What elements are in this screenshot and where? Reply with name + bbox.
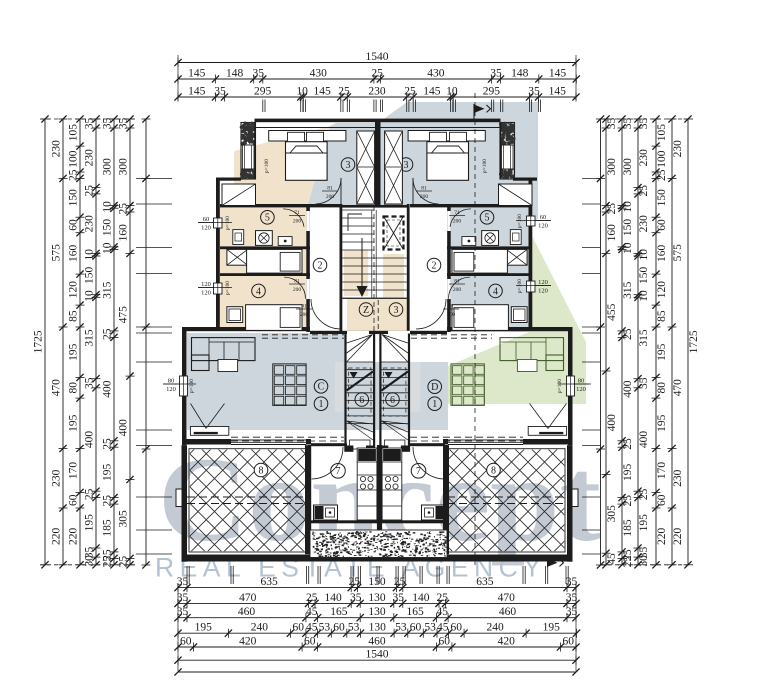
- svg-text:150: 150: [102, 219, 114, 237]
- svg-text:10: 10: [446, 86, 458, 98]
- svg-text:25: 25: [437, 592, 449, 604]
- svg-text:71: 71: [294, 210, 300, 216]
- svg-text:400: 400: [118, 419, 130, 437]
- svg-text:120: 120: [656, 281, 668, 299]
- svg-text:25: 25: [622, 438, 634, 450]
- svg-text:120: 120: [201, 290, 211, 297]
- svg-text:230: 230: [51, 140, 63, 158]
- svg-text:p=100: p=100: [482, 159, 488, 173]
- svg-text:145: 145: [549, 68, 567, 80]
- svg-text:130: 130: [368, 606, 386, 618]
- svg-text:25: 25: [638, 185, 650, 197]
- svg-text:195: 195: [638, 514, 650, 532]
- svg-text:635: 635: [260, 576, 278, 588]
- svg-text:35: 35: [214, 86, 226, 98]
- svg-text:35: 35: [177, 592, 189, 604]
- svg-text:300: 300: [606, 158, 618, 176]
- svg-text:25: 25: [371, 68, 383, 80]
- svg-text:460: 460: [238, 606, 256, 618]
- svg-text:120: 120: [538, 288, 548, 295]
- svg-text:1540: 1540: [366, 649, 389, 661]
- svg-text:165: 165: [406, 606, 424, 618]
- svg-text:60: 60: [540, 214, 547, 221]
- svg-text:25: 25: [622, 556, 634, 568]
- svg-text:5: 5: [265, 213, 270, 224]
- svg-text:200: 200: [453, 219, 462, 225]
- svg-text:420: 420: [239, 636, 257, 648]
- svg-text:165: 165: [330, 606, 348, 618]
- svg-text:85: 85: [656, 310, 668, 322]
- svg-text:3: 3: [394, 305, 399, 316]
- svg-text:130: 130: [369, 622, 387, 634]
- svg-text:4: 4: [493, 286, 498, 297]
- svg-text:60: 60: [333, 622, 345, 634]
- svg-text:230: 230: [84, 149, 96, 167]
- svg-text:120: 120: [201, 281, 211, 288]
- svg-text:60: 60: [68, 494, 80, 506]
- svg-text:160: 160: [68, 245, 80, 263]
- svg-text:p=100: p=100: [225, 216, 231, 230]
- svg-text:130: 130: [368, 592, 386, 604]
- svg-text:45: 45: [306, 622, 318, 634]
- svg-text:220: 220: [672, 528, 684, 546]
- svg-text:470: 470: [498, 592, 516, 604]
- svg-text:60: 60: [68, 219, 80, 231]
- svg-text:145: 145: [188, 68, 206, 80]
- svg-text:25: 25: [118, 203, 130, 215]
- svg-text:D: D: [431, 382, 438, 393]
- svg-text:230: 230: [672, 140, 684, 158]
- svg-text:80: 80: [578, 378, 585, 385]
- svg-text:25: 25: [622, 495, 634, 507]
- svg-text:60: 60: [438, 636, 450, 648]
- svg-text:195: 195: [195, 622, 213, 634]
- svg-text:195: 195: [622, 464, 634, 482]
- svg-text:85: 85: [68, 310, 80, 322]
- svg-text:475: 475: [118, 306, 130, 324]
- svg-text:25: 25: [102, 328, 114, 340]
- svg-text:71: 71: [454, 210, 460, 216]
- svg-text:220: 220: [68, 528, 80, 546]
- svg-text:170: 170: [68, 462, 80, 480]
- svg-text:p=100: p=100: [557, 379, 563, 393]
- svg-text:10: 10: [102, 242, 114, 254]
- svg-text:10: 10: [296, 86, 308, 98]
- svg-text:25: 25: [638, 488, 650, 500]
- svg-text:10: 10: [638, 249, 650, 261]
- svg-text:105: 105: [68, 124, 80, 142]
- svg-text:200: 200: [293, 219, 302, 225]
- svg-text:60: 60: [180, 636, 192, 648]
- svg-text:160: 160: [118, 224, 130, 242]
- svg-text:35: 35: [350, 592, 362, 604]
- svg-text:8: 8: [491, 465, 496, 476]
- svg-text:81: 81: [421, 186, 427, 192]
- svg-text:35: 35: [393, 592, 405, 604]
- svg-text:400: 400: [606, 414, 618, 432]
- svg-text:150: 150: [622, 219, 634, 237]
- svg-text:195: 195: [68, 343, 80, 361]
- svg-text:80: 80: [168, 378, 175, 385]
- svg-text:25: 25: [118, 556, 130, 568]
- svg-text:200: 200: [326, 194, 335, 200]
- svg-text:200: 200: [293, 287, 302, 293]
- svg-text:60: 60: [203, 216, 210, 223]
- svg-text:45: 45: [437, 622, 449, 634]
- svg-text:60: 60: [304, 636, 316, 648]
- svg-text:45: 45: [306, 606, 318, 618]
- svg-text:230: 230: [638, 149, 650, 167]
- svg-text:p=100: p=100: [517, 279, 523, 293]
- svg-text:p=100: p=100: [225, 281, 231, 295]
- svg-text:100: 100: [68, 150, 80, 168]
- svg-text:91: 91: [301, 304, 307, 310]
- svg-text:145: 145: [423, 86, 441, 98]
- svg-text:170: 170: [656, 462, 668, 480]
- svg-text:220: 220: [656, 528, 668, 546]
- svg-text:200: 200: [453, 287, 462, 293]
- svg-text:430: 430: [427, 68, 445, 80]
- svg-text:25: 25: [68, 169, 80, 181]
- svg-text:45: 45: [606, 553, 618, 565]
- svg-text:300: 300: [118, 158, 130, 176]
- svg-text:420: 420: [498, 636, 516, 648]
- svg-text:1540: 1540: [366, 51, 389, 63]
- svg-text:120: 120: [201, 225, 211, 232]
- svg-text:195: 195: [84, 514, 96, 532]
- svg-text:10: 10: [622, 201, 634, 213]
- svg-text:240: 240: [251, 622, 269, 634]
- svg-text:230: 230: [638, 215, 650, 233]
- svg-text:60: 60: [656, 494, 668, 506]
- svg-text:25: 25: [306, 592, 318, 604]
- svg-text:240: 240: [486, 622, 504, 634]
- svg-text:35: 35: [638, 377, 650, 389]
- svg-text:305: 305: [606, 505, 618, 523]
- svg-text:6: 6: [359, 395, 364, 406]
- svg-text:430: 430: [310, 68, 328, 80]
- svg-text:195: 195: [656, 414, 668, 432]
- svg-text:25: 25: [622, 328, 634, 340]
- svg-text:305: 305: [118, 510, 130, 528]
- svg-text:195: 195: [102, 464, 114, 482]
- svg-text:25: 25: [656, 169, 668, 181]
- svg-text:195: 195: [656, 343, 668, 361]
- svg-text:91: 91: [448, 304, 454, 310]
- svg-text:120: 120: [166, 386, 176, 393]
- svg-text:150: 150: [638, 267, 650, 285]
- svg-text:80: 80: [656, 382, 668, 394]
- svg-text:470: 470: [51, 379, 63, 397]
- svg-text:25: 25: [102, 438, 114, 450]
- svg-text:25: 25: [338, 86, 350, 98]
- svg-text:230: 230: [51, 469, 63, 487]
- svg-text:140: 140: [412, 592, 430, 604]
- svg-text:148: 148: [511, 68, 529, 80]
- svg-text:400: 400: [638, 431, 650, 449]
- svg-text:400: 400: [84, 431, 96, 449]
- svg-text:35: 35: [177, 606, 189, 618]
- svg-text:575: 575: [672, 244, 684, 262]
- svg-text:25: 25: [102, 556, 114, 568]
- svg-text:635: 635: [476, 576, 494, 588]
- svg-text:p=100: p=100: [517, 214, 523, 228]
- svg-text:105: 105: [656, 124, 668, 142]
- svg-text:160: 160: [656, 245, 668, 263]
- svg-text:25: 25: [102, 495, 114, 507]
- svg-text:200: 200: [447, 312, 456, 318]
- svg-text:120: 120: [538, 223, 548, 230]
- svg-text:Z: Z: [363, 305, 369, 316]
- svg-text:10: 10: [102, 201, 114, 213]
- svg-text:53: 53: [319, 622, 331, 634]
- svg-text:100: 100: [656, 150, 668, 168]
- svg-text:295: 295: [483, 86, 501, 98]
- svg-text:10: 10: [84, 290, 96, 302]
- svg-text:150: 150: [656, 189, 668, 207]
- svg-text:400: 400: [102, 380, 114, 398]
- svg-text:80: 80: [68, 382, 80, 394]
- svg-text:200: 200: [420, 194, 429, 200]
- svg-text:195: 195: [543, 622, 561, 634]
- svg-text:35: 35: [528, 86, 540, 98]
- svg-text:185: 185: [102, 519, 114, 537]
- svg-text:150: 150: [84, 267, 96, 285]
- svg-text:C: C: [318, 382, 325, 393]
- svg-text:315: 315: [638, 329, 650, 347]
- svg-text:315: 315: [622, 281, 634, 299]
- svg-text:25: 25: [349, 576, 361, 588]
- svg-text:8: 8: [259, 465, 264, 476]
- svg-text:53: 53: [395, 622, 407, 634]
- svg-text:6: 6: [390, 395, 395, 406]
- svg-text:35: 35: [490, 68, 502, 80]
- svg-text:148: 148: [226, 68, 244, 80]
- svg-text:150: 150: [68, 189, 80, 207]
- svg-text:60: 60: [451, 622, 463, 634]
- svg-text:300: 300: [102, 158, 114, 176]
- svg-text:575: 575: [51, 244, 63, 262]
- svg-text:10: 10: [638, 290, 650, 302]
- svg-text:10: 10: [84, 249, 96, 261]
- svg-text:230: 230: [84, 215, 96, 233]
- svg-text:7: 7: [336, 466, 341, 477]
- svg-text:35: 35: [84, 377, 96, 389]
- svg-text:81: 81: [454, 279, 460, 285]
- svg-text:145: 145: [313, 86, 331, 98]
- svg-text:3: 3: [404, 160, 409, 171]
- svg-text:4: 4: [256, 286, 261, 297]
- svg-text:53: 53: [424, 622, 436, 634]
- svg-text:220: 220: [51, 528, 63, 546]
- svg-text:120: 120: [68, 281, 80, 299]
- svg-text:400: 400: [622, 380, 634, 398]
- svg-text:460: 460: [499, 606, 517, 618]
- svg-text:25: 25: [84, 488, 96, 500]
- svg-text:145: 145: [549, 86, 567, 98]
- svg-text:60: 60: [410, 622, 422, 634]
- svg-text:25: 25: [606, 203, 618, 215]
- svg-text:1725: 1725: [688, 330, 700, 353]
- svg-text:2: 2: [318, 260, 323, 271]
- svg-text:2: 2: [432, 260, 437, 271]
- svg-text:25: 25: [404, 86, 416, 98]
- svg-text:460: 460: [368, 636, 386, 648]
- svg-text:53: 53: [348, 622, 360, 634]
- svg-text:81: 81: [294, 279, 300, 285]
- svg-text:81: 81: [327, 186, 333, 192]
- svg-text:5: 5: [485, 213, 490, 224]
- svg-text:195: 195: [68, 414, 80, 432]
- svg-text:p=100: p=100: [264, 159, 270, 173]
- svg-text:60: 60: [656, 219, 668, 231]
- svg-text:p=100: p=100: [189, 379, 195, 393]
- svg-text:10: 10: [622, 242, 634, 254]
- svg-text:3: 3: [346, 160, 351, 171]
- svg-text:45: 45: [437, 606, 449, 618]
- svg-text:145: 145: [188, 86, 206, 98]
- svg-text:315: 315: [84, 329, 96, 347]
- svg-text:185: 185: [622, 519, 634, 537]
- svg-text:35: 35: [252, 68, 264, 80]
- svg-text:295: 295: [254, 86, 272, 98]
- svg-text:1: 1: [432, 399, 437, 410]
- svg-text:200: 200: [300, 312, 309, 318]
- svg-text:315: 315: [102, 281, 114, 299]
- svg-text:60: 60: [562, 636, 574, 648]
- svg-text:1725: 1725: [33, 330, 45, 353]
- svg-text:140: 140: [324, 592, 342, 604]
- svg-text:230: 230: [672, 469, 684, 487]
- svg-text:470: 470: [239, 592, 257, 604]
- svg-text:160: 160: [606, 224, 618, 242]
- svg-text:60: 60: [292, 622, 304, 634]
- svg-text:300: 300: [622, 158, 634, 176]
- svg-text:120: 120: [576, 386, 586, 393]
- svg-text:470: 470: [672, 379, 684, 397]
- svg-text:230: 230: [368, 86, 386, 98]
- svg-text:455: 455: [606, 303, 618, 321]
- svg-text:120: 120: [538, 279, 548, 286]
- svg-text:1: 1: [319, 399, 324, 410]
- svg-text:25: 25: [84, 185, 96, 197]
